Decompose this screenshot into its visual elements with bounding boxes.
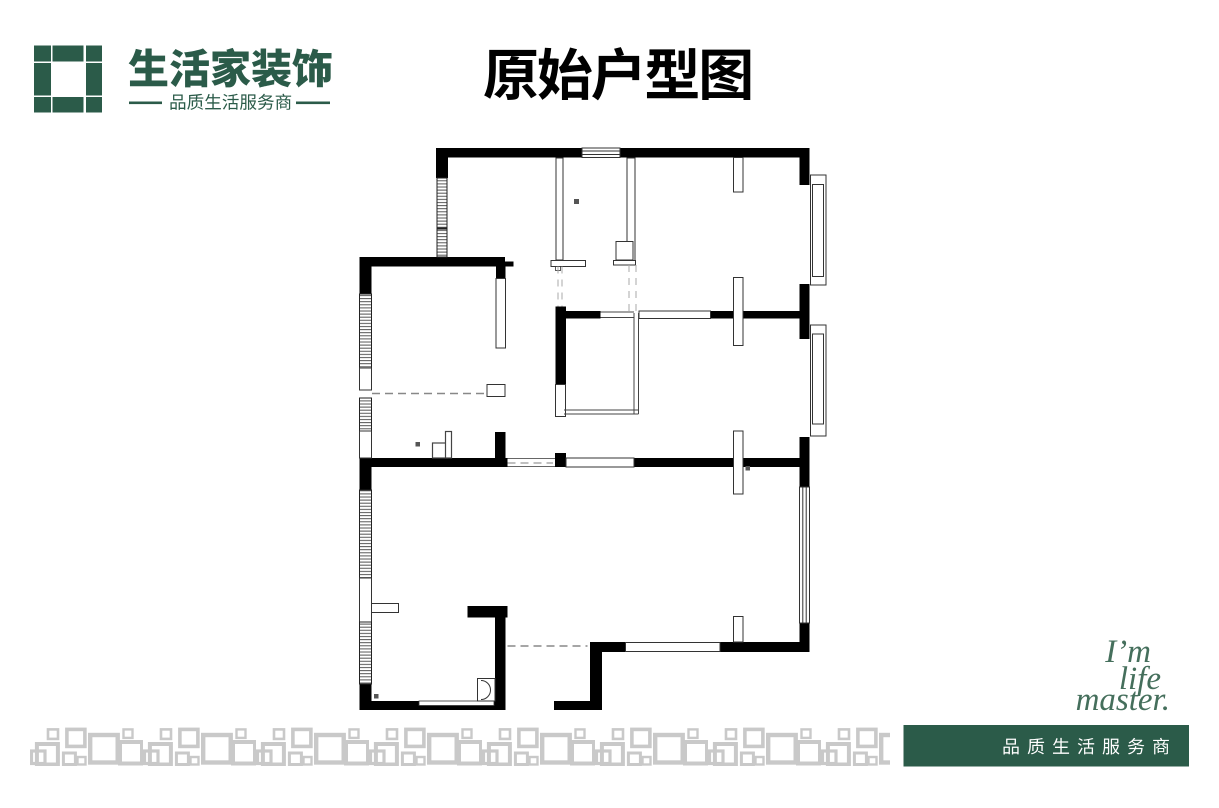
svg-text:master.: master.	[1076, 682, 1170, 718]
